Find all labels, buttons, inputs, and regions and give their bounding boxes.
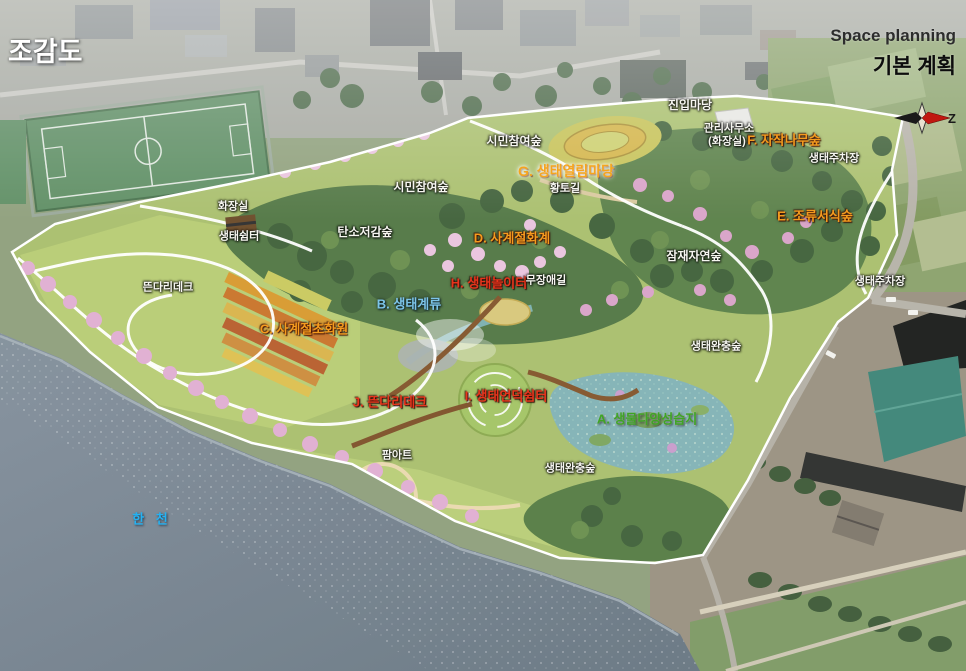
page-title: 조감도 [8, 30, 83, 69]
bird-eye-view-plan: Z 조감도 Space planning 기본 계획 진입마당시민참여숲관리사무… [0, 0, 966, 671]
plan-label-en: Space planning [830, 26, 956, 46]
plan-label-ko: 기본 계획 [873, 50, 956, 80]
svg-text:Z: Z [948, 111, 956, 126]
aerial-scene: Z [0, 0, 966, 671]
